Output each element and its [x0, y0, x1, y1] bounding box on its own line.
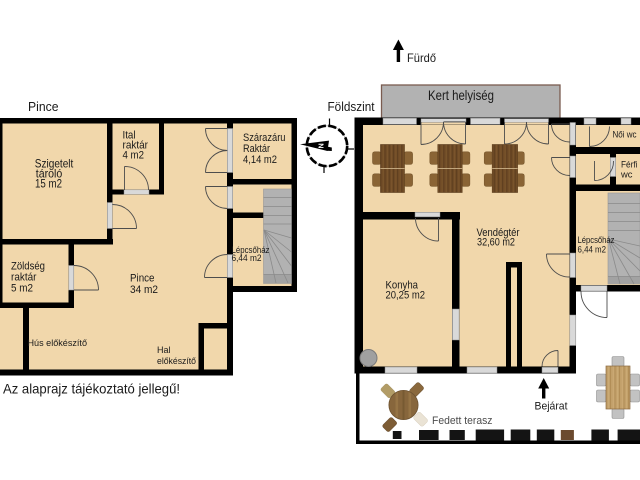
svg-text:5 m2: 5 m2	[11, 283, 33, 295]
svg-text:32,60 m2: 32,60 m2	[477, 236, 515, 248]
svg-text:Fedett terasz: Fedett terasz	[432, 415, 493, 427]
svg-text:Az alaprajz tájékoztató jelleg: Az alaprajz tájékoztató jellegű!	[3, 382, 180, 397]
svg-text:Lépcsőház: Lépcsőház	[578, 235, 615, 245]
svg-text:Kert helyiség: Kert helyiség	[428, 88, 494, 103]
svg-text:wc: wc	[620, 168, 633, 179]
svg-text:15 m2: 15 m2	[35, 177, 62, 190]
svg-text:Pince: Pince	[28, 99, 59, 114]
svg-text:4,14 m2: 4,14 m2	[243, 154, 277, 166]
svg-text:Hús előkészítő: Hús előkészítő	[28, 337, 88, 348]
svg-text:Hal: Hal	[157, 344, 171, 355]
svg-text:előkészítő: előkészítő	[157, 355, 196, 366]
svg-text:Földszint: Földszint	[328, 99, 375, 114]
svg-text:6,44 m2: 6,44 m2	[232, 253, 262, 263]
svg-text:34 m2: 34 m2	[130, 284, 158, 296]
svg-text:20,25 m2: 20,25 m2	[386, 290, 426, 302]
svg-text:6,44 m2: 6,44 m2	[578, 245, 607, 255]
svg-text:N: N	[316, 143, 325, 148]
svg-text:Női wc: Női wc	[613, 128, 637, 139]
svg-text:Bejárat: Bejárat	[535, 401, 568, 413]
svg-text:Fürdő: Fürdő	[407, 51, 436, 65]
svg-text:Pince: Pince	[130, 273, 155, 285]
svg-text:4 m2: 4 m2	[123, 149, 145, 161]
